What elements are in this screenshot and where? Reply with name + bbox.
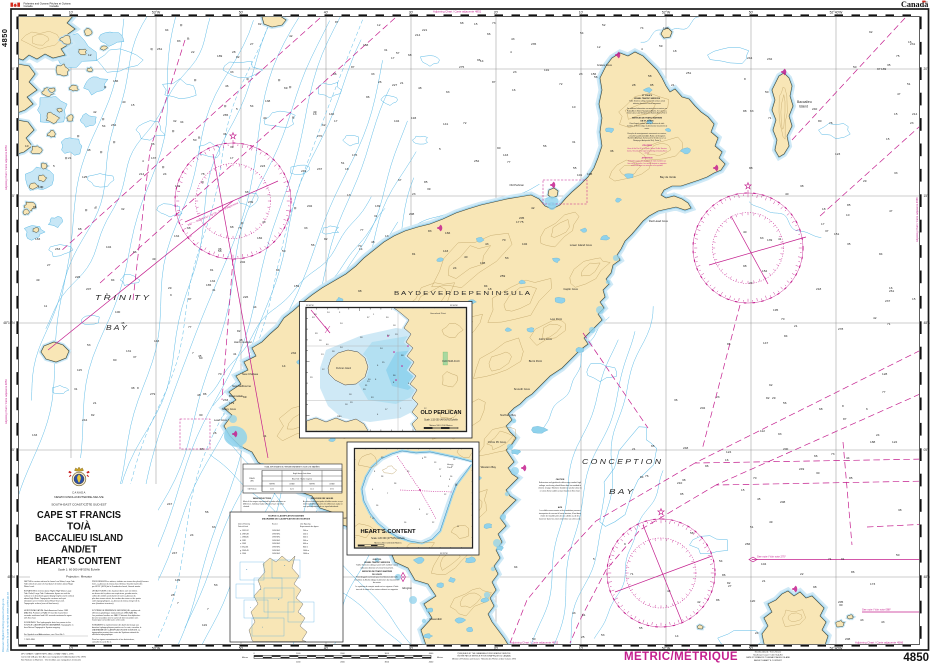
svg-text:28: 28 <box>632 83 636 87</box>
svg-text:Newfoundland / Terre-Neuve: Newfoundland / Terre-Neuve <box>755 651 782 654</box>
svg-text:97: 97 <box>877 67 881 71</box>
svg-text:h. 1900: h. 1900 <box>240 553 246 555</box>
svg-text:270: 270 <box>317 134 322 138</box>
svg-text:CHS·SHC: CHS·SHC <box>272 530 281 532</box>
svg-text:53°01′W: 53°01′W <box>306 305 314 307</box>
svg-text:0.9 m: 0.9 m <box>330 489 335 491</box>
svg-text:42: 42 <box>93 110 97 114</box>
svg-text:214: 214 <box>415 33 420 37</box>
svg-text:27: 27 <box>47 263 51 267</box>
svg-text:Submarine and pipelined cables: Submarine and pipelined cables may condu… <box>539 481 581 484</box>
svg-text:9: 9 <box>106 292 108 296</box>
svg-text:223: 223 <box>260 164 265 168</box>
svg-text:29: 29 <box>168 286 172 290</box>
svg-text:50: 50 <box>282 249 286 253</box>
svg-text:82: 82 <box>727 581 731 585</box>
svg-text:GULF OIL: GULF OIL <box>373 559 383 561</box>
svg-text:14: 14 <box>480 59 484 63</box>
svg-text:24: 24 <box>163 172 167 176</box>
svg-text:77: 77 <box>188 325 192 329</box>
svg-text:96: 96 <box>333 72 337 76</box>
svg-text:39: 39 <box>427 187 431 191</box>
svg-text:31: 31 <box>384 48 388 52</box>
svg-text:36: 36 <box>674 398 678 402</box>
svg-text:33: 33 <box>230 70 234 74</box>
svg-text:33: 33 <box>894 171 898 175</box>
svg-text:10: 10 <box>25 144 29 148</box>
svg-text:56: 56 <box>205 510 209 514</box>
svg-text:c. 1983-86: c. 1983-86 <box>240 537 249 539</box>
svg-text:45: 45 <box>121 321 125 325</box>
svg-text:81: 81 <box>210 268 214 272</box>
svg-text:300 m: 300 m <box>303 537 308 539</box>
svg-text:38: 38 <box>898 508 902 512</box>
svg-text:9: 9 <box>624 542 626 546</box>
svg-text:66: 66 <box>487 32 491 36</box>
svg-text:70: 70 <box>218 372 222 376</box>
svg-text:4: 4 <box>510 50 512 54</box>
svg-text:68: 68 <box>78 227 82 231</box>
svg-text:10: 10 <box>846 213 850 217</box>
svg-text:1.1 m: 1.1 m <box>310 489 315 491</box>
svg-text:24: 24 <box>190 533 194 537</box>
svg-text:DE ST JOHN'S: DE ST JOHN'S <box>640 120 654 122</box>
svg-text:43: 43 <box>860 618 864 622</box>
svg-text:95: 95 <box>650 83 654 87</box>
svg-text:Discover Digital Charting www: Discover Digital Charting www.charts.gc.… <box>1 598 5 652</box>
svg-text:53: 53 <box>214 583 218 587</box>
svg-text:188: 188 <box>870 440 875 444</box>
svg-text:88: 88 <box>743 109 747 113</box>
svg-text:g. 1903-49: g. 1903-49 <box>240 550 249 552</box>
svg-text:82: 82 <box>258 22 262 26</box>
svg-text:12: 12 <box>377 23 381 27</box>
svg-text:Burnt Point: Burnt Point <box>529 359 543 363</box>
svg-text:21: 21 <box>93 401 97 405</box>
svg-text:54: 54 <box>719 559 723 563</box>
svg-text:15': 15' <box>10 194 15 198</box>
svg-text:76: 76 <box>645 474 649 478</box>
svg-text:50': 50' <box>749 646 754 650</box>
svg-text:69: 69 <box>284 86 288 90</box>
svg-text:32: 32 <box>173 119 177 123</box>
svg-text:Grates Cove: Grates Cove <box>597 63 613 67</box>
svg-text:77: 77 <box>882 390 886 394</box>
svg-text:5: 5 <box>236 107 238 111</box>
svg-text:CAPE ST FRANCIS: CAPE ST FRANCIS <box>37 510 121 521</box>
svg-text:16: 16 <box>908 40 912 44</box>
svg-text:SERVICES DE TRAFIC MARITIME: SERVICES DE TRAFIC MARITIME <box>632 117 663 120</box>
svg-text:23: 23 <box>910 121 914 125</box>
svg-text:charted.: charted. <box>243 505 250 508</box>
svg-text:195: 195 <box>773 308 778 312</box>
svg-text:122: 122 <box>892 440 897 444</box>
svg-text:Perlican Island: Perlican Island <box>336 367 352 370</box>
svg-text:7: 7 <box>192 351 194 355</box>
svg-text:90: 90 <box>113 358 117 362</box>
svg-text:Northern Bay: Northern Bay <box>500 413 516 417</box>
svg-text:Smooth Cove: Smooth Cove <box>514 387 531 391</box>
svg-text:50: 50 <box>853 65 857 69</box>
svg-text:CHS·SHC: CHS·SHC <box>272 550 281 552</box>
svg-text:C O N C E P T I O N: C O N C E P T I O N <box>582 459 662 466</box>
svg-text:92: 92 <box>769 383 773 387</box>
svg-text:78: 78 <box>201 172 205 176</box>
svg-text:100: 100 <box>115 310 120 314</box>
svg-text:97: 97 <box>188 297 192 301</box>
svg-text:98: 98 <box>200 447 204 451</box>
svg-text:55: 55 <box>573 166 577 170</box>
svg-text:81: 81 <box>412 252 416 256</box>
svg-text:40: 40 <box>122 100 126 104</box>
svg-text:LW·BM: LW·BM <box>290 484 296 486</box>
svg-text:DU GOLFE: DU GOLFE <box>372 574 383 576</box>
svg-text:50: 50 <box>193 138 197 142</box>
svg-text:72: 72 <box>463 121 467 125</box>
svg-text:179: 179 <box>229 401 234 405</box>
svg-text:239: 239 <box>248 200 253 204</box>
svg-text:214: 214 <box>912 112 917 116</box>
svg-text:87: 87 <box>335 20 339 24</box>
svg-text:77: 77 <box>360 228 364 232</box>
svg-text:40: 40 <box>464 255 468 259</box>
svg-text:48: 48 <box>197 393 201 397</box>
svg-text:221: 221 <box>422 28 427 32</box>
svg-text:41: 41 <box>778 237 782 241</box>
svg-text:Hant's Harbour: Hant's Harbour <box>234 340 252 344</box>
svg-text:82: 82 <box>91 413 95 417</box>
svg-text:21: 21 <box>632 447 636 451</box>
svg-text:CHS·SHC: CHS·SHC <box>272 533 281 535</box>
svg-text:71: 71 <box>828 557 832 561</box>
svg-text:Islington: Islington <box>402 586 413 590</box>
svg-text:232: 232 <box>767 57 772 61</box>
svg-text:47: 47 <box>897 92 901 96</box>
svg-text:124: 124 <box>726 450 731 454</box>
svg-text:DFO CHART / CARTE MPO 4850. 21: DFO CHART / CARTE MPO 4850. 21 MAY / MAI… <box>21 653 74 656</box>
svg-text:91: 91 <box>582 613 586 617</box>
svg-text:279: 279 <box>150 392 155 396</box>
svg-text:Ochre Pit Cove: Ochre Pit Cove <box>488 440 507 444</box>
svg-text:57: 57 <box>396 51 400 55</box>
svg-text:53°00′W: 53°00′W <box>450 305 458 307</box>
svg-text:Minister of Fisheries and Ocea: Minister of Fisheries and Oceans · Minis… <box>452 657 516 660</box>
svg-text:82: 82 <box>766 396 770 400</box>
svg-text:88: 88 <box>749 166 753 170</box>
svg-text:Adjoining Chart / Carte adjace: Adjoining Chart / Carte adjacente 4852 <box>510 641 559 645</box>
svg-text:CANADA: CANADA <box>72 490 86 494</box>
svg-text:40: 40 <box>785 192 789 196</box>
svg-text:40: 40 <box>743 230 747 234</box>
svg-text:15: 15 <box>474 22 478 26</box>
svg-text:56: 56 <box>783 401 787 405</box>
svg-text:52°40'W: 52°40'W <box>830 11 844 15</box>
svg-text:63: 63 <box>760 236 764 240</box>
svg-text:21: 21 <box>794 324 798 328</box>
svg-text:18: 18 <box>488 287 492 291</box>
svg-text:50': 50' <box>239 11 244 15</box>
svg-text:49: 49 <box>36 278 40 282</box>
svg-text:72: 72 <box>559 82 563 86</box>
svg-text:158: 158 <box>363 43 368 47</box>
svg-text:76: 76 <box>238 226 242 230</box>
svg-text:48°10'N: 48°10'N <box>3 321 15 325</box>
svg-text:249: 249 <box>301 169 306 173</box>
svg-text:UTILIZERS: UTILIZERS <box>642 145 653 147</box>
svg-text:85: 85 <box>847 203 851 207</box>
svg-text:82: 82 <box>324 237 328 241</box>
svg-text:B A Y: B A Y <box>106 325 129 332</box>
svg-text:37: 37 <box>133 355 137 359</box>
svg-text:10: 10 <box>572 105 576 109</box>
svg-text:Date du levé: Date du levé <box>238 525 248 528</box>
svg-text:5: 5 <box>593 557 595 561</box>
svg-text:202: 202 <box>700 406 705 410</box>
svg-text:15: 15 <box>886 137 890 141</box>
svg-text:ATTENTION: ATTENTION <box>642 157 653 160</box>
svg-text:23: 23 <box>412 192 416 196</box>
svg-text:40: 40 <box>263 116 267 120</box>
svg-text:27: 27 <box>250 42 254 46</box>
svg-text:86: 86 <box>203 392 207 396</box>
svg-text:CHS·SHC: CHS·SHC <box>272 553 281 555</box>
svg-text:TIDAL INFORMATION / RENSEIGNEM: TIDAL INFORMATION / RENSEIGNEMENTS SUR L… <box>264 466 320 469</box>
svg-text:41: 41 <box>212 288 216 292</box>
svg-text:Mean Tide · Marée moyenne: Mean Tide · Marée moyenne <box>292 478 312 480</box>
svg-text:HW·PM: HW·PM <box>269 484 275 486</box>
svg-text:43: 43 <box>511 37 515 41</box>
svg-text:15: 15 <box>131 103 135 107</box>
svg-text:208: 208 <box>845 637 850 641</box>
svg-text:10': 10' <box>69 646 74 650</box>
svg-text:Cavendish: Cavendish <box>429 617 442 621</box>
svg-text:226: 226 <box>243 295 248 299</box>
svg-text:52°40'W: 52°40'W <box>830 646 844 650</box>
svg-text:8: 8 <box>744 77 746 81</box>
svg-text:263: 263 <box>55 247 60 251</box>
svg-text:Les câbles sous-marins et les: Les câbles sous-marins et les conduites … <box>540 509 581 512</box>
svg-text:252: 252 <box>474 159 479 163</box>
svg-text:consulter la carte No 1.: consulter la carte No 1. <box>92 641 112 644</box>
svg-text:266: 266 <box>745 542 750 546</box>
svg-text:48: 48 <box>418 86 422 90</box>
svg-text:Greenland Point: Greenland Point <box>430 312 446 315</box>
svg-text:See note / Voir note 270°: See note / Voir note 270° <box>757 555 786 559</box>
svg-text:83: 83 <box>177 39 181 43</box>
svg-text:63: 63 <box>212 525 216 529</box>
svg-text:41: 41 <box>263 434 267 438</box>
svg-text:OLD PERLICAN: OLD PERLICAN <box>421 410 462 416</box>
svg-text:Metres 100 0 100: Metres 100 0 100 Metres <box>429 424 452 427</box>
svg-text:119: 119 <box>202 623 207 627</box>
svg-text:35: 35 <box>847 242 851 246</box>
svg-text:Le système de compte rendu est: Le système de compte rendu est en vigueu… <box>355 585 399 588</box>
svg-text:40': 40' <box>324 646 329 650</box>
svg-text:CHS·SHC: CHS·SHC <box>272 540 281 542</box>
svg-text:52°W: 52°W <box>662 646 671 650</box>
svg-text:RÉFLEXION DES VAGUES: RÉFLEXION DES VAGUES <box>311 497 334 500</box>
svg-text:202: 202 <box>240 260 245 264</box>
svg-text:193: 193 <box>411 116 416 120</box>
svg-text:0.2 m: 0.2 m <box>290 489 295 491</box>
svg-text:70: 70 <box>358 244 362 248</box>
svg-text:50': 50' <box>239 646 244 650</box>
svg-text:rieur de la zone et les navire: rieur de la zone et les navires doivent … <box>356 588 398 591</box>
svg-text:235: 235 <box>531 42 536 46</box>
svg-text:Western Bay: Western Bay <box>481 465 497 469</box>
svg-text:173: 173 <box>870 582 875 586</box>
svg-text:Scale 1: 60 000 (48°55′N) Éch: Scale 1: 60 000 (48°55′N) Échelle <box>58 567 100 572</box>
svg-text:58: 58 <box>648 74 652 78</box>
svg-text:17: 17 <box>391 56 395 60</box>
svg-text:05': 05' <box>924 448 929 452</box>
svg-text:275: 275 <box>459 65 464 69</box>
svg-text:207: 207 <box>86 287 91 291</box>
svg-text:43: 43 <box>485 242 489 246</box>
svg-text:Job's Cove: Job's Cove <box>539 337 553 341</box>
svg-text:38: 38 <box>800 184 804 188</box>
svg-text:42: 42 <box>697 600 701 604</box>
svg-text:1.0 m: 1.0 m <box>270 489 275 491</box>
svg-text:247: 247 <box>172 551 177 555</box>
svg-text:17: 17 <box>230 156 234 160</box>
svg-text:149: 149 <box>175 578 180 582</box>
svg-text:214: 214 <box>139 172 144 176</box>
svg-text:30: 30 <box>816 471 820 475</box>
svg-text:New Chelsea: New Chelsea <box>242 372 258 376</box>
svg-text:31: 31 <box>374 214 378 218</box>
svg-text:66: 66 <box>133 250 137 254</box>
svg-text:39: 39 <box>230 145 234 149</box>
svg-text:159: 159 <box>294 284 299 288</box>
svg-text:47: 47 <box>889 209 893 213</box>
svg-text:30: 30 <box>199 413 203 417</box>
svg-text:SERVICES DE TRAFIC MARITIME: SERVICES DE TRAFIC MARITIME <box>362 570 393 573</box>
svg-text:74: 74 <box>640 26 644 30</box>
svg-text:15: 15 <box>741 488 745 492</box>
svg-text:SOUTH-EAST COAST/CÔTE SUD-EST: SOUTH-EAST COAST/CÔTE SUD-EST <box>51 501 106 506</box>
svg-text:87: 87 <box>351 65 355 69</box>
svg-text:Metres 200 0 200 400 Me: Metres 200 0 200 400 Metres <box>374 542 401 545</box>
svg-text:94: 94 <box>514 565 518 569</box>
svg-text:67: 67 <box>398 178 402 182</box>
svg-text:73: 73 <box>492 21 496 25</box>
svg-text:a. 1991-92: a. 1991-92 <box>240 530 249 532</box>
svg-text:182: 182 <box>257 236 262 240</box>
svg-text:For Symbols and Abbreviations,: For Symbols and Abbreviations, see Chart… <box>24 633 65 636</box>
svg-text:l'ouest pour concorder avec ce: l'ouest pour concorder avec cette carte. <box>92 619 126 622</box>
svg-text:218: 218 <box>816 287 821 291</box>
svg-text:94: 94 <box>165 28 169 32</box>
svg-text:50: 50 <box>765 90 769 94</box>
svg-text:VESSEL TRAFFIC SERVICES: VESSEL TRAFFIC SERVICES <box>364 561 391 564</box>
svg-text:41: 41 <box>233 352 237 356</box>
svg-text:par 48°55′ (46°N) de la Grande: par 48°55′ (46°N) de la Grande-du-chenal… <box>92 585 141 588</box>
svg-text:21: 21 <box>68 156 72 160</box>
svg-text:151: 151 <box>834 232 839 236</box>
svg-text:DIAGRAMME DE CLASSIFICATION DE: DIAGRAMME DE CLASSIFICATION DES SOURCES <box>262 517 311 520</box>
svg-text:17: 17 <box>821 222 825 226</box>
svg-text:17: 17 <box>516 220 520 224</box>
svg-text:METRIC/MÉTRIQUE: METRIC/MÉTRIQUE <box>624 650 738 663</box>
svg-text:Canada: Canada <box>50 4 60 8</box>
svg-text:48°10'N: 48°10'N <box>924 321 930 325</box>
svg-text:265: 265 <box>223 113 228 117</box>
svg-text:PUBLISHED BY THE CANADIAN HYDR: PUBLISHED BY THE CANADIAN HYDROGRAPHIC S… <box>457 652 511 655</box>
svg-text:84: 84 <box>484 284 488 288</box>
svg-text:17: 17 <box>334 119 338 123</box>
svg-text:86: 86 <box>727 342 731 346</box>
svg-text:7: 7 <box>177 601 179 605</box>
svg-text:73: 73 <box>831 452 835 456</box>
svg-text:205: 205 <box>519 216 524 220</box>
svg-text:LW·BM: LW·BM <box>330 484 336 486</box>
svg-text:68: 68 <box>819 407 823 411</box>
svg-text:Adjoining Chart / Carte adjace: Adjoining Chart / Carte adjacente 4851 <box>433 10 482 14</box>
svg-text:26: 26 <box>378 80 382 84</box>
svg-text:Lead Cove: Lead Cove <box>214 418 228 422</box>
svg-text:87: 87 <box>492 80 496 84</box>
svg-text:Adjoining Chart / Carte adjace: Adjoining Chart / Carte adjacente 4853 <box>4 145 8 190</box>
svg-text:with this chart.: with this chart. <box>24 616 37 619</box>
svg-text:ST JOHN'S: ST JOHN'S <box>642 95 653 97</box>
svg-text:51: 51 <box>750 525 754 529</box>
svg-text:63: 63 <box>446 90 450 94</box>
svg-text:12: 12 <box>597 45 601 49</box>
svg-text:40: 40 <box>262 220 266 224</box>
svg-text:sont pas repésentés de ce sign: sont pas repésentés de ce signal individ… <box>303 505 339 508</box>
svg-text:Traffic Services calling-in po: Traffic Services calling-in point with n… <box>356 564 399 567</box>
svg-text:51: 51 <box>341 161 345 165</box>
svg-text:131: 131 <box>126 349 131 353</box>
svg-text:29: 29 <box>772 396 776 400</box>
svg-text:93: 93 <box>778 432 782 436</box>
svg-text:TO/À: TO/À <box>67 520 92 533</box>
svg-text:from Natural Topographic Syste: from Natural Topographic System mapping. <box>24 626 61 629</box>
svg-text:24: 24 <box>453 266 457 270</box>
svg-text:98: 98 <box>358 289 362 293</box>
svg-text:70: 70 <box>502 238 506 242</box>
svg-text:120: 120 <box>663 26 668 30</box>
svg-text:108: 108 <box>480 261 485 265</box>
svg-text:Point: Point <box>447 466 452 469</box>
svg-text:Espacement des lignes: Espacement des lignes <box>300 525 319 528</box>
svg-text:Lower Island Cove: Lower Island Cove <box>570 243 593 247</box>
svg-text:166: 166 <box>445 231 450 235</box>
svg-text:278: 278 <box>838 327 843 331</box>
svg-text:259: 259 <box>500 274 505 278</box>
svg-text:20': 20' <box>924 67 929 71</box>
svg-text:50: 50 <box>896 553 900 557</box>
svg-text:14: 14 <box>282 364 286 368</box>
svg-text:Hearts: Hearts <box>447 463 454 466</box>
svg-text:152: 152 <box>762 269 767 273</box>
svg-text:143: 143 <box>503 153 508 157</box>
svg-text:226: 226 <box>75 275 80 279</box>
svg-text:84: 84 <box>276 268 280 272</box>
svg-text:CHS·SHC: CHS·SHC <box>272 543 281 545</box>
svg-text:transporter du courant à haute: transporter du courant à haute tension; … <box>539 512 581 515</box>
svg-text:maritime; la flèche indique la: maritime; la flèche indique la direction… <box>355 578 400 581</box>
svg-text:46: 46 <box>225 84 229 88</box>
svg-text:21: 21 <box>400 81 404 85</box>
svg-text:13: 13 <box>385 234 389 238</box>
svg-text:Scale 1:15 000 (48°56′N) Échel: Scale 1:15 000 (48°56′N) Échelle <box>424 419 459 422</box>
svg-text:112: 112 <box>760 429 765 433</box>
svg-text:18: 18 <box>345 167 349 171</box>
svg-text:115: 115 <box>77 368 82 372</box>
svg-text:237: 237 <box>317 167 322 171</box>
